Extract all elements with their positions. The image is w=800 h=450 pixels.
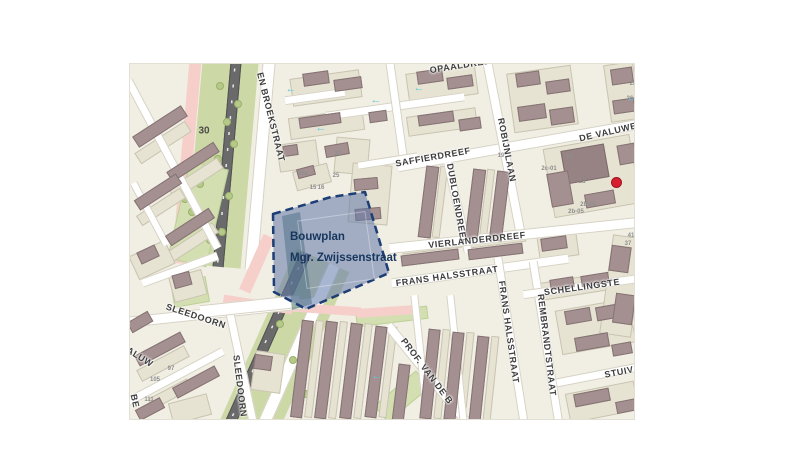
one-way-arrow-icon: ← bbox=[371, 94, 382, 106]
house-number: 111 bbox=[144, 397, 153, 403]
building-block bbox=[545, 78, 571, 94]
tree bbox=[225, 192, 233, 200]
tree bbox=[223, 118, 231, 126]
street-label: FRANS HALSSTRAAT bbox=[497, 280, 521, 384]
one-way-arrow-icon: ← bbox=[372, 370, 383, 382]
street-label: STUIV bbox=[604, 364, 635, 379]
house-number: 2c-01 bbox=[541, 166, 556, 172]
house-number: 28 bbox=[630, 81, 635, 87]
cycle-path bbox=[239, 234, 274, 294]
house-number: 25 bbox=[333, 173, 340, 179]
building-block bbox=[549, 106, 575, 125]
bouwplan-label-line2: Mgr. Zwijssenstraat bbox=[290, 252, 397, 264]
one-way-arrow-icon: ← bbox=[286, 83, 297, 95]
house-number: 16 bbox=[318, 185, 325, 191]
location-marker bbox=[611, 177, 622, 188]
zone-30-sign: 30 bbox=[198, 126, 209, 137]
building-block bbox=[458, 117, 481, 132]
building-block bbox=[355, 207, 382, 221]
one-way-arrow-icon: ← bbox=[414, 82, 425, 94]
street-label: DUBLOENDREEF bbox=[445, 163, 469, 246]
street-label: FRANS HALSSTRAAT bbox=[395, 264, 499, 288]
building-block bbox=[253, 353, 273, 370]
bouwplan-label-line1: Bouwplan bbox=[290, 231, 345, 243]
house-number: 2b-05 bbox=[568, 209, 584, 215]
tree bbox=[234, 100, 242, 108]
building-block bbox=[616, 143, 635, 166]
one-way-arrow-icon: ← bbox=[627, 92, 636, 104]
one-way-arrow-icon: ← bbox=[316, 122, 327, 134]
tree bbox=[216, 82, 224, 90]
building-block bbox=[129, 311, 153, 333]
building-block bbox=[612, 293, 635, 325]
building-block bbox=[517, 103, 547, 122]
house-number: 22 bbox=[335, 151, 342, 157]
house-number: 1b bbox=[565, 154, 572, 160]
street-label: REMBRANDTSTRAAT bbox=[536, 293, 558, 396]
building-block bbox=[368, 109, 387, 122]
building-block bbox=[608, 245, 631, 274]
house-number: 41 bbox=[628, 233, 635, 239]
building-block bbox=[611, 341, 633, 356]
house-number: 26a bbox=[298, 171, 308, 177]
building-block bbox=[354, 177, 379, 191]
house-number: 15 bbox=[310, 185, 317, 191]
house-number: 1a bbox=[579, 179, 586, 185]
house-number: 2b-10 bbox=[580, 202, 596, 208]
house-number: 105 bbox=[150, 377, 160, 383]
page: Bouwplan Mgr. Zwijssenstraat 30 EN BROEK… bbox=[0, 0, 800, 450]
tree bbox=[276, 320, 284, 328]
tree bbox=[230, 140, 238, 148]
map: Bouwplan Mgr. Zwijssenstraat 30 EN BROEK… bbox=[129, 63, 635, 420]
house-number: 97 bbox=[168, 366, 175, 372]
house-number: 37 bbox=[625, 241, 632, 247]
